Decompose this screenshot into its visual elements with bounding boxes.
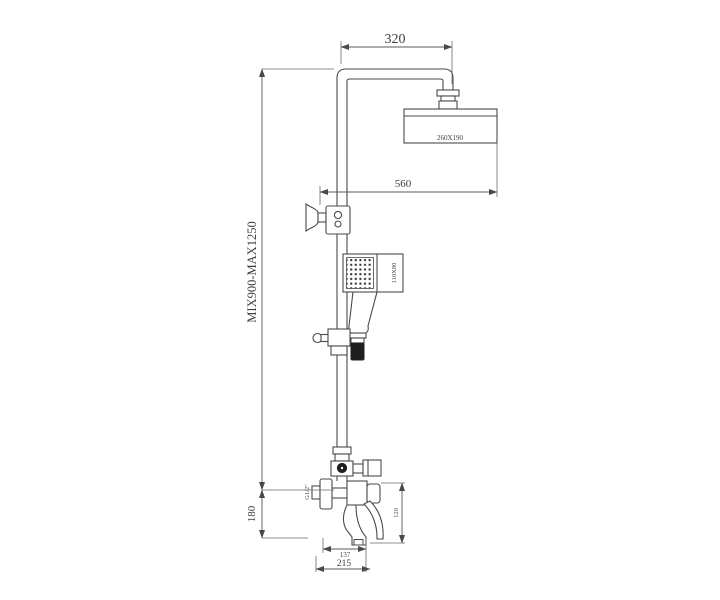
wall-bracket: [306, 204, 350, 234]
bracket-screw-bottom: [335, 221, 341, 227]
head-reach-label: 560: [395, 178, 412, 190]
arm-width-label: 320: [385, 32, 406, 47]
mixer-handle-lever: [364, 501, 383, 539]
mixer-height-label: 180: [246, 505, 258, 522]
drawing-page: 260X190 110X80: [0, 0, 720, 600]
mixer-body: G1/2": [304, 479, 383, 539]
hose-fitting-upper: [349, 333, 366, 338]
spout-reach-label: 137: [340, 551, 351, 559]
slider-block-lower: [331, 346, 347, 355]
diverter-nut-mid: [335, 454, 349, 461]
tub-spout: [343, 505, 366, 545]
technical-drawing-canvas: 260X190 110X80: [0, 0, 720, 600]
total-reach-label: 215: [337, 559, 352, 569]
diverter-valve: [331, 447, 381, 476]
diverter-dot-center: [341, 467, 343, 469]
wall-inlet-flange: [312, 486, 320, 499]
diverter-nut-top: [333, 447, 351, 454]
thread-label: G1/2": [304, 484, 311, 500]
connector-base: [439, 101, 457, 109]
connector-nut: [437, 90, 459, 96]
connector-stem: [441, 96, 455, 101]
hand-shower: 110X80: [343, 254, 403, 360]
mixer-cap: [367, 484, 380, 503]
overhead-shower-head: 260X190: [404, 109, 497, 143]
bracket-neck: [318, 213, 326, 222]
hand-shower-size-label: 110X80: [391, 263, 398, 284]
shower-head-connector: [437, 90, 459, 109]
mixer-cartridge-body: [347, 481, 367, 505]
diverter-knob: [363, 460, 381, 476]
diverter-connector: [353, 464, 363, 473]
hose-fitting-lower: [351, 338, 364, 343]
bracket-screw-top: [334, 211, 341, 218]
wall-plate: [320, 479, 332, 509]
hand-shower-handle: [349, 292, 377, 333]
bracket-cone: [306, 204, 318, 231]
height-range-label: MIX900-MAX1250: [245, 221, 259, 322]
hand-shower-nozzle-face: [347, 258, 374, 289]
slider-bracket: [313, 329, 350, 355]
head-size-label: 260X190: [437, 134, 464, 142]
slider-block: [328, 329, 350, 346]
bracket-block: [326, 206, 350, 234]
body-drop-label: 120: [393, 508, 400, 518]
hose-grip: [351, 343, 364, 360]
